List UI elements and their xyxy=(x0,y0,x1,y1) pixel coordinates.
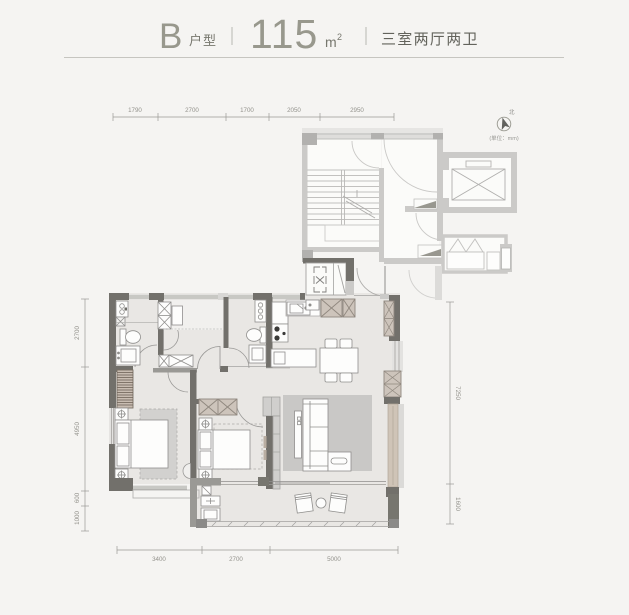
svg-text:2950: 2950 xyxy=(350,107,364,114)
svg-text:户型: 户型 xyxy=(189,33,217,48)
svg-text:1700: 1700 xyxy=(240,107,254,114)
svg-text:600: 600 xyxy=(74,492,81,503)
svg-text:1600: 1600 xyxy=(454,497,461,511)
svg-text:三室两厅两卫: 三室两厅两卫 xyxy=(381,31,479,48)
svg-text:1000: 1000 xyxy=(74,511,81,525)
svg-text:7250: 7250 xyxy=(454,386,461,400)
svg-text:3400: 3400 xyxy=(152,556,166,563)
svg-text:5000: 5000 xyxy=(327,556,341,563)
svg-text:m: m xyxy=(325,34,337,50)
svg-text:4950: 4950 xyxy=(74,422,81,436)
svg-text:B: B xyxy=(159,17,182,56)
svg-text:2: 2 xyxy=(337,32,342,42)
svg-text:(单位：mm): (单位：mm) xyxy=(489,134,518,142)
svg-text:2700: 2700 xyxy=(185,107,199,114)
svg-text:北: 北 xyxy=(509,108,515,116)
svg-text:2700: 2700 xyxy=(229,556,243,563)
svg-text:2700: 2700 xyxy=(74,326,81,340)
svg-text:1790: 1790 xyxy=(128,107,142,114)
svg-text:115: 115 xyxy=(250,11,318,57)
svg-text:2050: 2050 xyxy=(287,107,301,114)
